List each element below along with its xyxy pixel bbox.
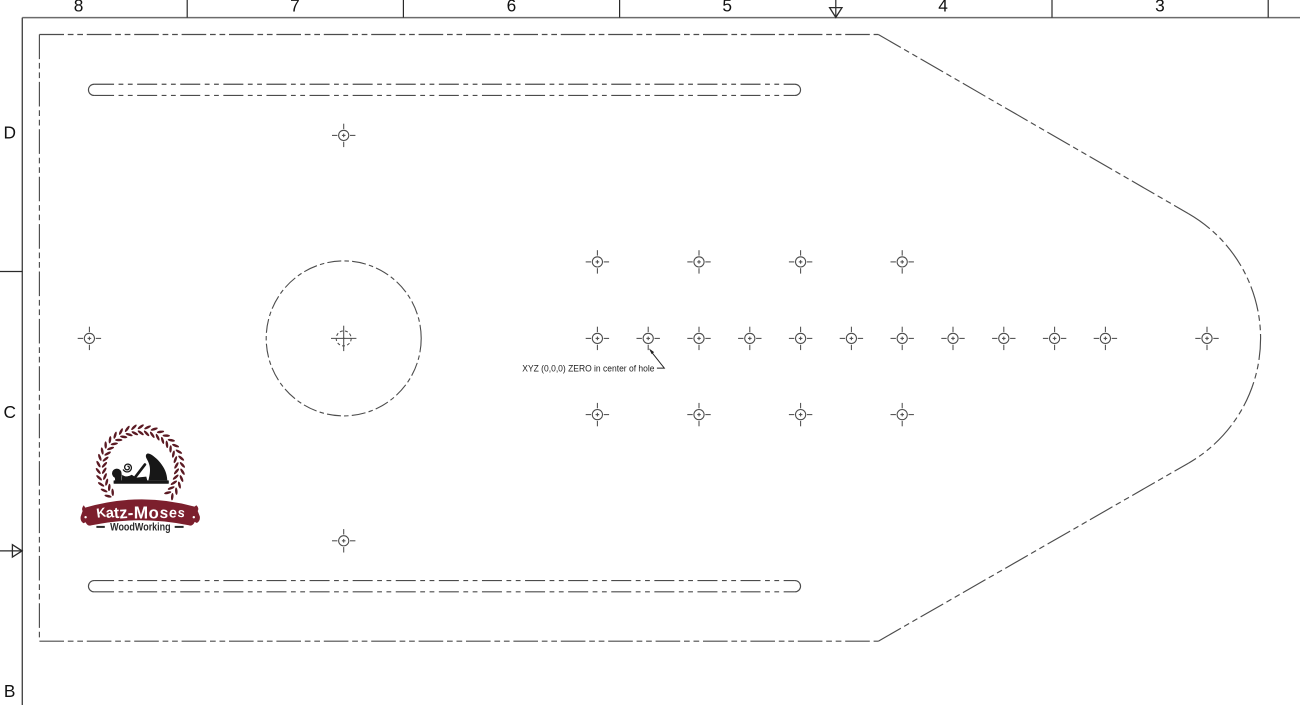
svg-text:4: 4 (938, 0, 948, 16)
svg-text:8: 8 (74, 0, 84, 16)
svg-text:7: 7 (290, 0, 300, 16)
svg-text:C: C (3, 402, 15, 422)
svg-text:D: D (3, 123, 15, 143)
svg-text:o: o (148, 503, 159, 522)
svg-text:WoodWorking: WoodWorking (110, 522, 171, 534)
svg-text:5: 5 (722, 0, 732, 16)
svg-text:XYZ (0,0,0) ZERO in center of: XYZ (0,0,0) ZERO in center of hole (522, 363, 654, 373)
svg-text:6: 6 (507, 0, 517, 16)
svg-text:3: 3 (1155, 0, 1165, 16)
svg-text:M: M (134, 503, 148, 523)
svg-text:B: B (4, 681, 16, 701)
